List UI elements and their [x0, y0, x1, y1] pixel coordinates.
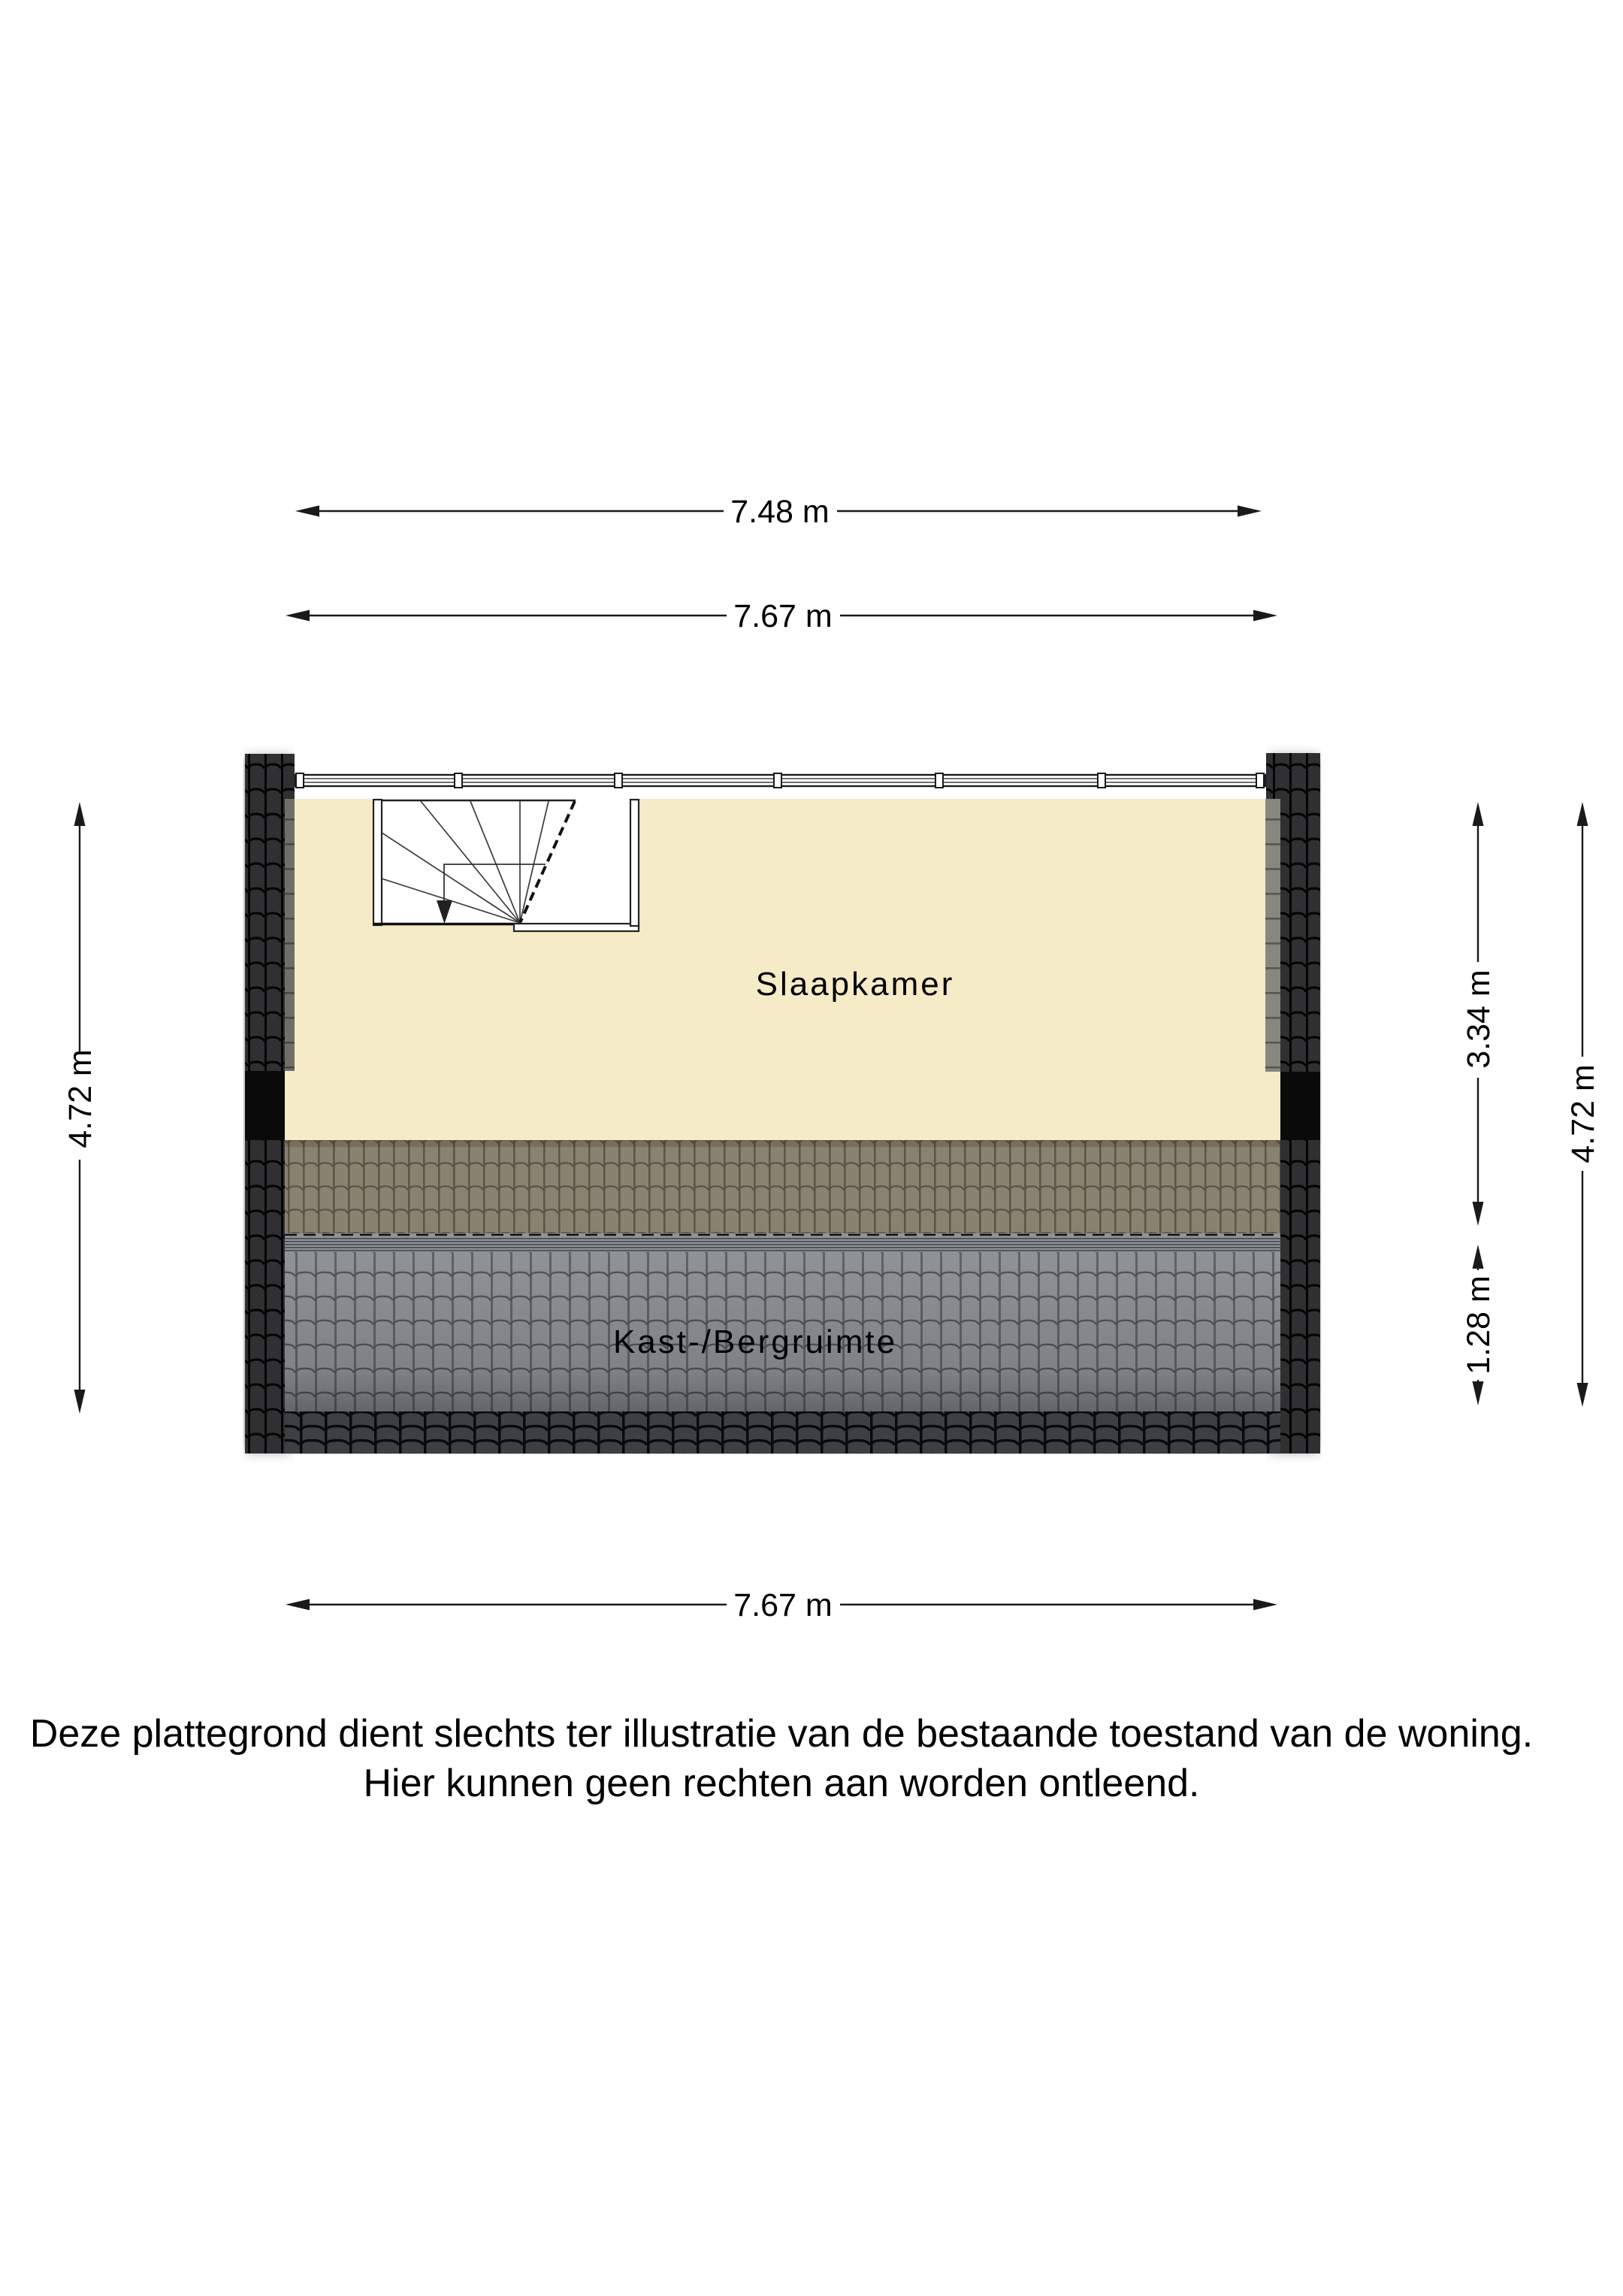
svg-text:Kast-/Bergruimte: Kast-/Bergruimte — [613, 1323, 897, 1360]
svg-text:4.72 m: 4.72 m — [62, 1049, 98, 1148]
svg-text:7.67 m: 7.67 m — [733, 1587, 832, 1623]
svg-text:7.67 m: 7.67 m — [733, 598, 832, 634]
svg-text:Hier kunnen geen rechten aan w: Hier kunnen geen rechten aan worden ontl… — [363, 1762, 1199, 1805]
svg-text:7.48 m: 7.48 m — [730, 494, 829, 530]
svg-text:1.28 m: 1.28 m — [1461, 1275, 1497, 1374]
svg-text:3.34 m: 3.34 m — [1461, 970, 1497, 1068]
svg-text:Slaapkamer: Slaapkamer — [756, 966, 955, 1003]
svg-text:Deze plattegrond dient slechts: Deze plattegrond dient slechts ter illus… — [30, 1712, 1533, 1756]
svg-text:4.72 m: 4.72 m — [1565, 1064, 1601, 1163]
